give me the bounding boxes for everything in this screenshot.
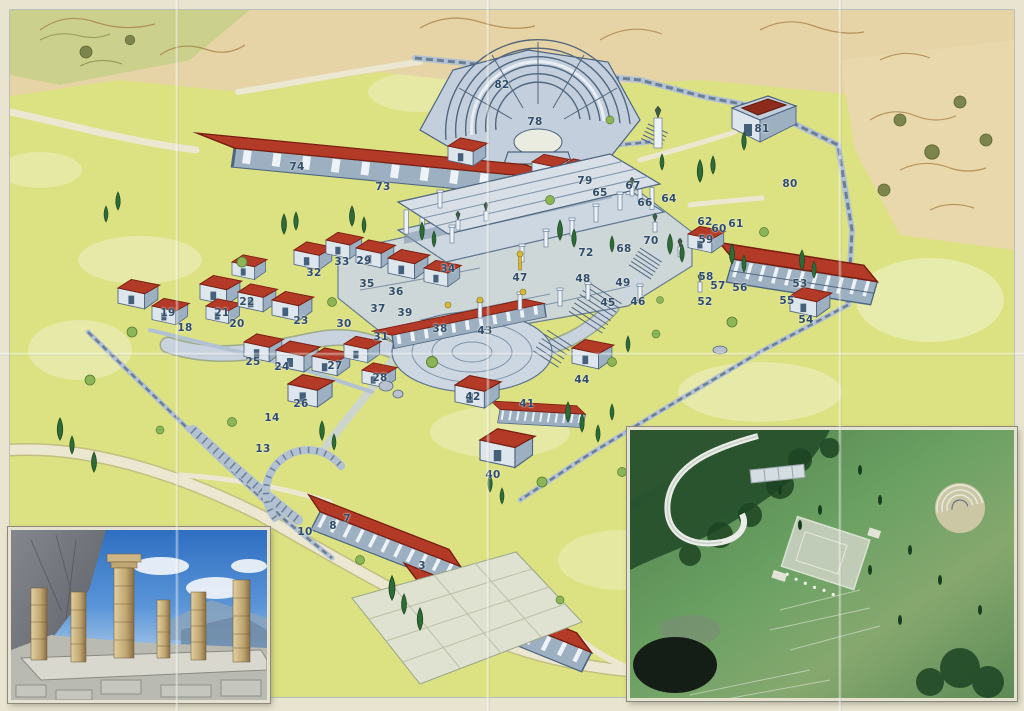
aerial-photo-illustration (630, 430, 1014, 698)
temple-columns-photo-inset (8, 527, 270, 703)
aerial-cave (633, 637, 717, 693)
delphi-map-sheet: 8278747973818067656466626160597068722933… (0, 0, 1024, 711)
temple-photo-illustration (11, 530, 267, 700)
aerial-site-photo-inset (627, 427, 1017, 701)
